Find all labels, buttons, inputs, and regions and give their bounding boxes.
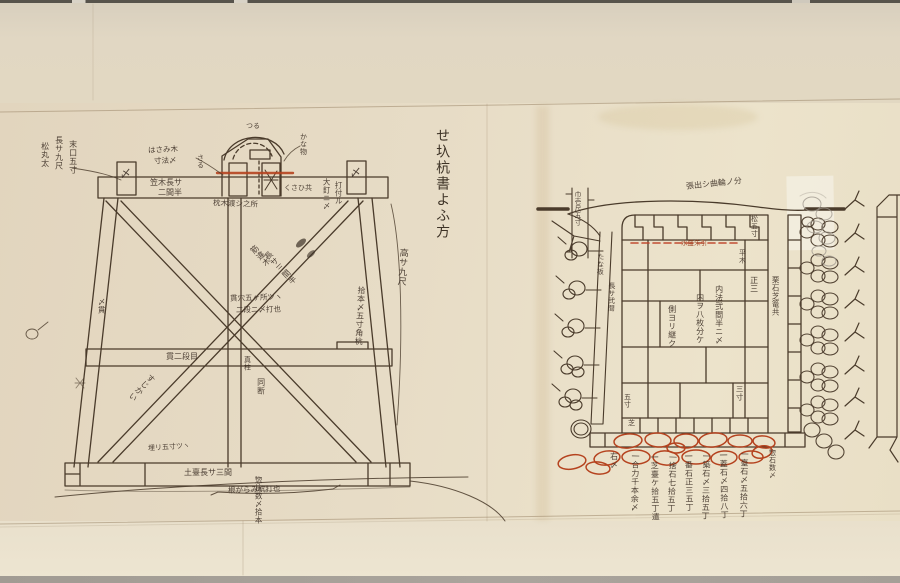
shime-mark-right: 〆 <box>350 167 361 179</box>
inner-text-col2: 内ヲ八枚分ケ <box>695 293 704 344</box>
tally-column: 一合力千本余〆 <box>629 452 639 512</box>
right-stone-clusters <box>800 217 844 459</box>
measure-pole-note: 巾壱尺五寸 <box>573 191 580 226</box>
small-left-note-1: 五寸 <box>623 393 631 408</box>
height-note: 高サ九尺 <box>395 248 407 287</box>
cell-note: 正三 <box>749 276 758 293</box>
cap-left-note: さる <box>196 154 204 169</box>
sill-right-note: 惣石数〆 <box>768 449 776 479</box>
left-stakes-and-stones <box>552 188 612 438</box>
level-note: 平木 <box>738 249 746 264</box>
small-left-note-2: 芝 <box>627 419 635 427</box>
trestle-braces <box>98 201 371 462</box>
right-tick-band <box>788 215 801 432</box>
beam-note-1: 笠木長サ <box>150 179 182 188</box>
tally-column: 一捨石七拾五丁 <box>666 453 677 513</box>
y-stakes <box>845 191 864 439</box>
bank-curve <box>568 201 807 214</box>
shime-mark-left: 〆 <box>120 168 131 180</box>
nail-note-1: 大釘ニ〆 <box>322 178 330 210</box>
plank-note-1: たな板 <box>596 253 604 276</box>
cap-right-note: かな物 <box>299 133 307 156</box>
right-outer-note: 栗石芝篭共 <box>771 276 779 316</box>
right-post-note: 拾本〆五寸角杭 <box>353 286 365 346</box>
inner-text-col1: 内法弐間半ニ〆 <box>714 285 723 345</box>
scroll-title: せ圦杭書よふ方 <box>434 128 449 240</box>
cap-under-note: 枕木渡シ之所 <box>213 199 258 209</box>
material-note-col1: 松丸太 <box>40 142 49 168</box>
annotation-leaders <box>26 146 401 425</box>
plank-note-2: 長サ弐間 <box>606 282 615 312</box>
tally-column: 右〆 <box>609 452 618 469</box>
tally-column: 一蓋石〆四拾八丁 <box>718 451 728 519</box>
inner-text-col3: 側ヨリ継ク <box>667 305 676 348</box>
tally-column: 一番石正三五丁 <box>683 452 693 512</box>
material-note-col3: 末口五寸 <box>68 140 77 174</box>
nail-note-2: 打付ル <box>334 181 342 205</box>
pencil-marks <box>800 192 836 266</box>
clamp-note-1: はさみ木 <box>148 145 178 155</box>
mid-right-note: 三寸 <box>735 385 743 401</box>
right-partial-pier <box>869 195 900 462</box>
pile-driver-cap <box>217 137 293 196</box>
center-note-2: 二段ニ〆打也 <box>236 306 281 315</box>
beam-note-2: 二間半 <box>158 189 182 198</box>
material-note-col2: 長サ九尺 <box>54 136 63 170</box>
wedge-note: くさひ共 <box>284 185 312 193</box>
tally-column: 一築石〆三拾五丁 <box>700 452 710 520</box>
tally-column: 一芝臺ケ拾五丁遣 <box>649 453 659 521</box>
small-mark-note: 〆貫 <box>97 298 105 314</box>
center-post-note: 真柱 <box>243 356 251 371</box>
crest-note: 松五寸 <box>750 215 758 238</box>
ink-drawing-layer <box>0 0 900 583</box>
pile-count-note: 惣杭数〆拾本 <box>254 476 262 524</box>
clamp-note-2: 寸法〆 <box>154 157 177 166</box>
cap-top-note: つる <box>246 123 260 131</box>
tie-beam-note: 貫二段目 <box>166 353 198 362</box>
paper-seams <box>0 4 900 575</box>
red-ink-note: 水盛朱引 <box>681 240 707 247</box>
scroll-scan: せ圦杭書よふ方 松丸太 長サ九尺 末口五寸 はさみ木 寸法〆 笠木長サ 二間半 … <box>0 0 900 583</box>
crenellated-joints <box>635 215 759 240</box>
brace-lower-right-note: 同断 <box>256 378 265 395</box>
tally-column: 一臺石〆五拾六丁 <box>738 450 748 518</box>
base-beam-note: 土臺長サ三間 <box>184 469 232 478</box>
